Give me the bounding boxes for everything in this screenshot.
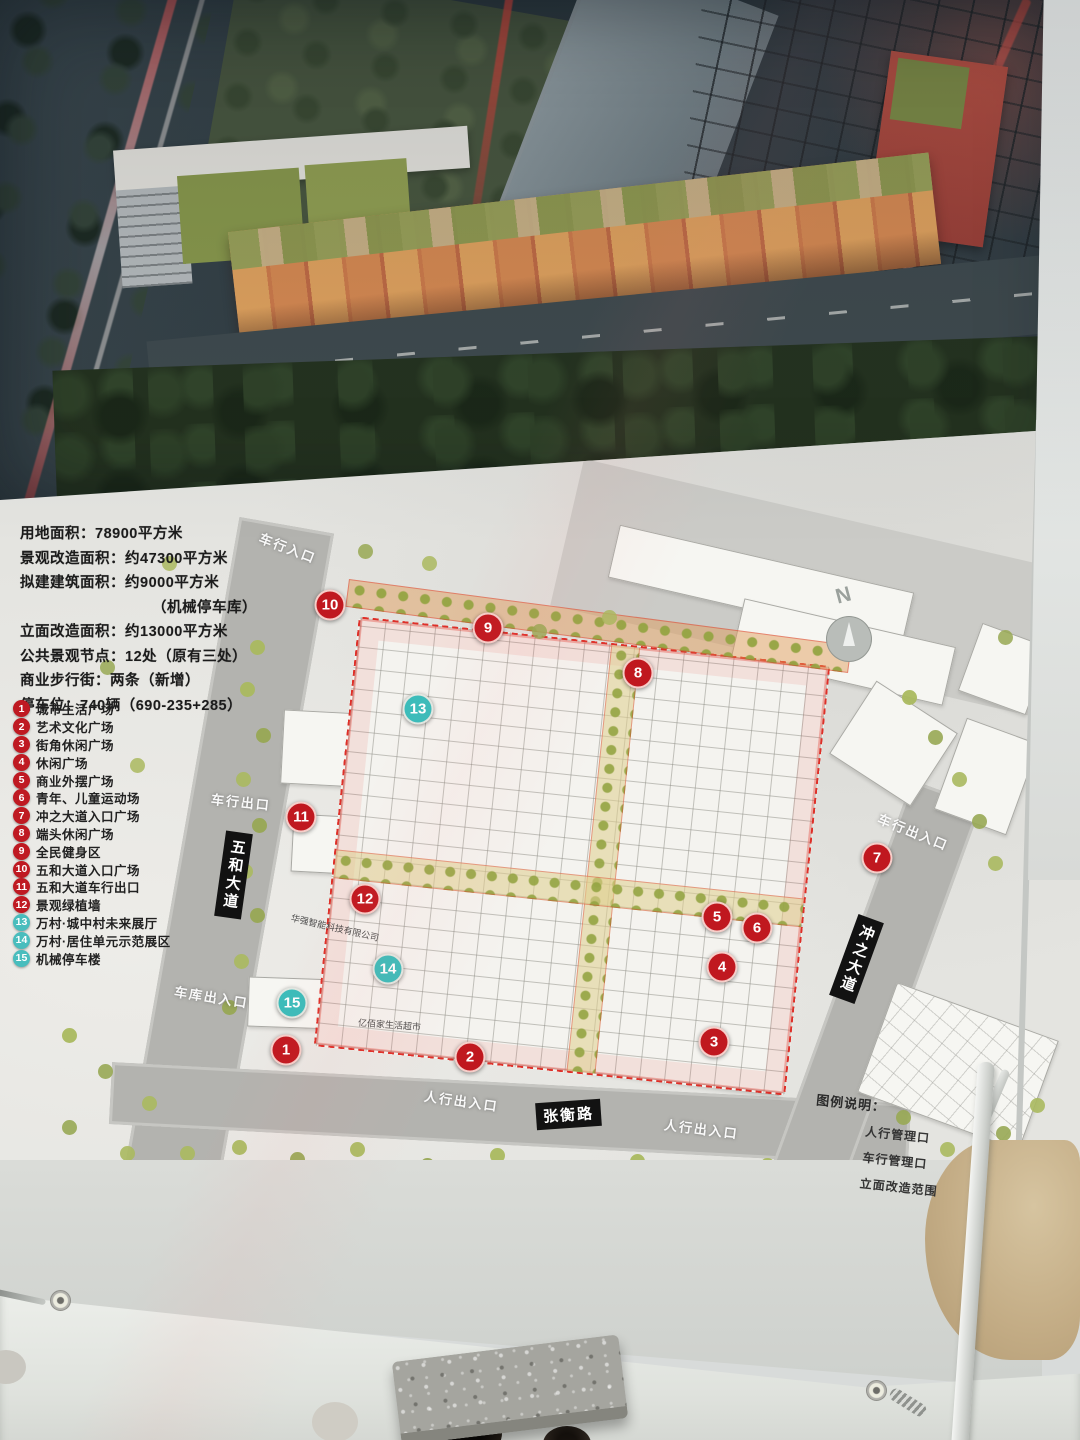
stat-line: 拟建建筑面积：约9000平方米 xyxy=(20,571,350,596)
map-marker-8: 8 xyxy=(623,658,654,689)
legend-number: 9 xyxy=(13,843,30,860)
map-marker-1: 1 xyxy=(271,1035,302,1066)
legend-item-2: 2艺术文化广场 xyxy=(13,718,171,736)
legend-label: 五和大道入口广场 xyxy=(36,860,140,879)
stat-line: 用地面积：78900平方米 xyxy=(20,522,350,547)
legend-label: 万村·居住单元示范展区 xyxy=(36,931,171,950)
project-stats: 用地面积：78900平方米景观改造面积：约47300平方米拟建建筑面积：约900… xyxy=(20,522,350,718)
legend-item-4: 4休闲广场 xyxy=(13,753,171,771)
legend-label: 机械停车楼 xyxy=(36,949,101,968)
legend-number: 2 xyxy=(13,718,30,735)
legend-number: 13 xyxy=(13,914,30,931)
pedestrian-street-vertical xyxy=(567,645,641,1074)
road-label-zhangheng: 张衡路 xyxy=(535,1099,602,1130)
map-marker-11: 11 xyxy=(286,802,317,833)
legend-item-8: 8端头休闲广场 xyxy=(13,825,171,843)
legend-number: 6 xyxy=(13,789,30,806)
stat-line: （机械停车库） xyxy=(20,596,350,621)
legend-number: 10 xyxy=(13,861,30,878)
legend-number: 8 xyxy=(13,825,30,842)
legend-label: 端头休闲广场 xyxy=(36,824,114,843)
map-marker-14: 14 xyxy=(373,954,404,985)
legend-number: 1 xyxy=(13,700,30,717)
legend-number: 4 xyxy=(13,754,30,771)
map-key-item: 车行管理口 xyxy=(862,1149,941,1174)
legend-item-6: 6青年、儿童运动场 xyxy=(13,789,171,807)
legend-label: 艺术文化广场 xyxy=(36,717,114,736)
map-marker-15: 15 xyxy=(277,988,308,1019)
map-marker-7: 7 xyxy=(862,843,893,874)
tree-row-south xyxy=(232,1140,247,1155)
legend-item-14: 14万村·居住单元示范展区 xyxy=(13,931,171,949)
barrier-hole xyxy=(312,1402,358,1440)
stat-line: 公共景观节点：12处（原有三处） xyxy=(20,645,350,670)
legend-number: 3 xyxy=(13,736,30,753)
pedestrian-street-horizontal xyxy=(333,849,803,927)
map-key: 图例说明： 人行管理口车行管理口立面改造范围 xyxy=(807,1089,946,1199)
legend-label: 街角休闲广场 xyxy=(36,735,114,754)
compass-icon xyxy=(826,616,872,662)
map-marker-5: 5 xyxy=(702,902,733,933)
map-marker-9: 9 xyxy=(473,613,504,644)
map-marker-3: 3 xyxy=(699,1027,730,1058)
map-key-items: 人行管理口车行管理口立面改造范围 xyxy=(807,1117,944,1199)
legend-item-11: 11五和大道车行出口 xyxy=(13,878,171,896)
legend-label: 商业外摆广场 xyxy=(36,771,114,790)
map-marker-13: 13 xyxy=(403,694,434,725)
legend-item-3: 3街角休闲广场 xyxy=(13,736,171,754)
legend-label: 休闲广场 xyxy=(36,753,88,772)
legend-list: 1城市生活广场2艺术文化广场3街角休闲广场4休闲广场5商业外摆广场6青年、儿童运… xyxy=(13,700,171,967)
stat-line: 立面改造面积：约13000平方米 xyxy=(20,620,350,645)
map-marker-10: 10 xyxy=(315,590,346,621)
legend-item-9: 9全民健身区 xyxy=(13,842,171,860)
tree-cluster-southwest xyxy=(62,1028,77,1043)
legend-item-10: 10五和大道入口广场 xyxy=(13,860,171,878)
stat-line: 商业步行街：两条（新增） xyxy=(20,669,350,694)
legend-item-7: 7冲之大道入口广场 xyxy=(13,807,171,825)
legend-item-1: 1城市生活广场 xyxy=(13,700,171,718)
map-marker-6: 6 xyxy=(742,913,773,944)
legend-label: 景观绿植墙 xyxy=(36,895,101,914)
vignette xyxy=(0,0,1080,505)
legend-item-15: 15机械停车楼 xyxy=(13,949,171,967)
map-key-item: 人行管理口 xyxy=(864,1123,943,1148)
legend-number: 5 xyxy=(13,772,30,789)
map-marker-12: 12 xyxy=(350,884,381,915)
photo-scene: 用地面积：78900平方米景观改造面积：约47300平方米拟建建筑面积：约900… xyxy=(0,0,1080,1440)
legend-number: 15 xyxy=(13,950,30,967)
map-marker-2: 2 xyxy=(455,1042,486,1073)
legend-number: 14 xyxy=(13,932,30,949)
legend-number: 7 xyxy=(13,807,30,824)
legend-item-12: 12景观绿植墙 xyxy=(13,896,171,914)
legend-item-13: 13万村·城中村未来展厅 xyxy=(13,914,171,932)
tree-cluster-east xyxy=(902,690,917,705)
legend-number: 12 xyxy=(13,896,30,913)
legend-item-5: 5商业外摆广场 xyxy=(13,771,171,789)
legend-label: 五和大道车行出口 xyxy=(36,877,140,896)
legend-label: 全民健身区 xyxy=(36,842,101,861)
stat-line: 景观改造面积：约47300平方米 xyxy=(20,547,350,572)
legend-label: 冲之大道入口广场 xyxy=(36,806,140,825)
compass-needle xyxy=(843,622,855,646)
grommet xyxy=(50,1290,71,1311)
legend-label: 青年、儿童运动场 xyxy=(36,788,140,807)
legend-number: 11 xyxy=(13,878,30,895)
aerial-rendering xyxy=(0,0,1080,505)
map-marker-4: 4 xyxy=(707,952,738,983)
legend-label: 万村·城中村未来展厅 xyxy=(36,913,158,932)
legend-label: 城市生活广场 xyxy=(36,699,114,718)
grommet xyxy=(866,1380,887,1401)
